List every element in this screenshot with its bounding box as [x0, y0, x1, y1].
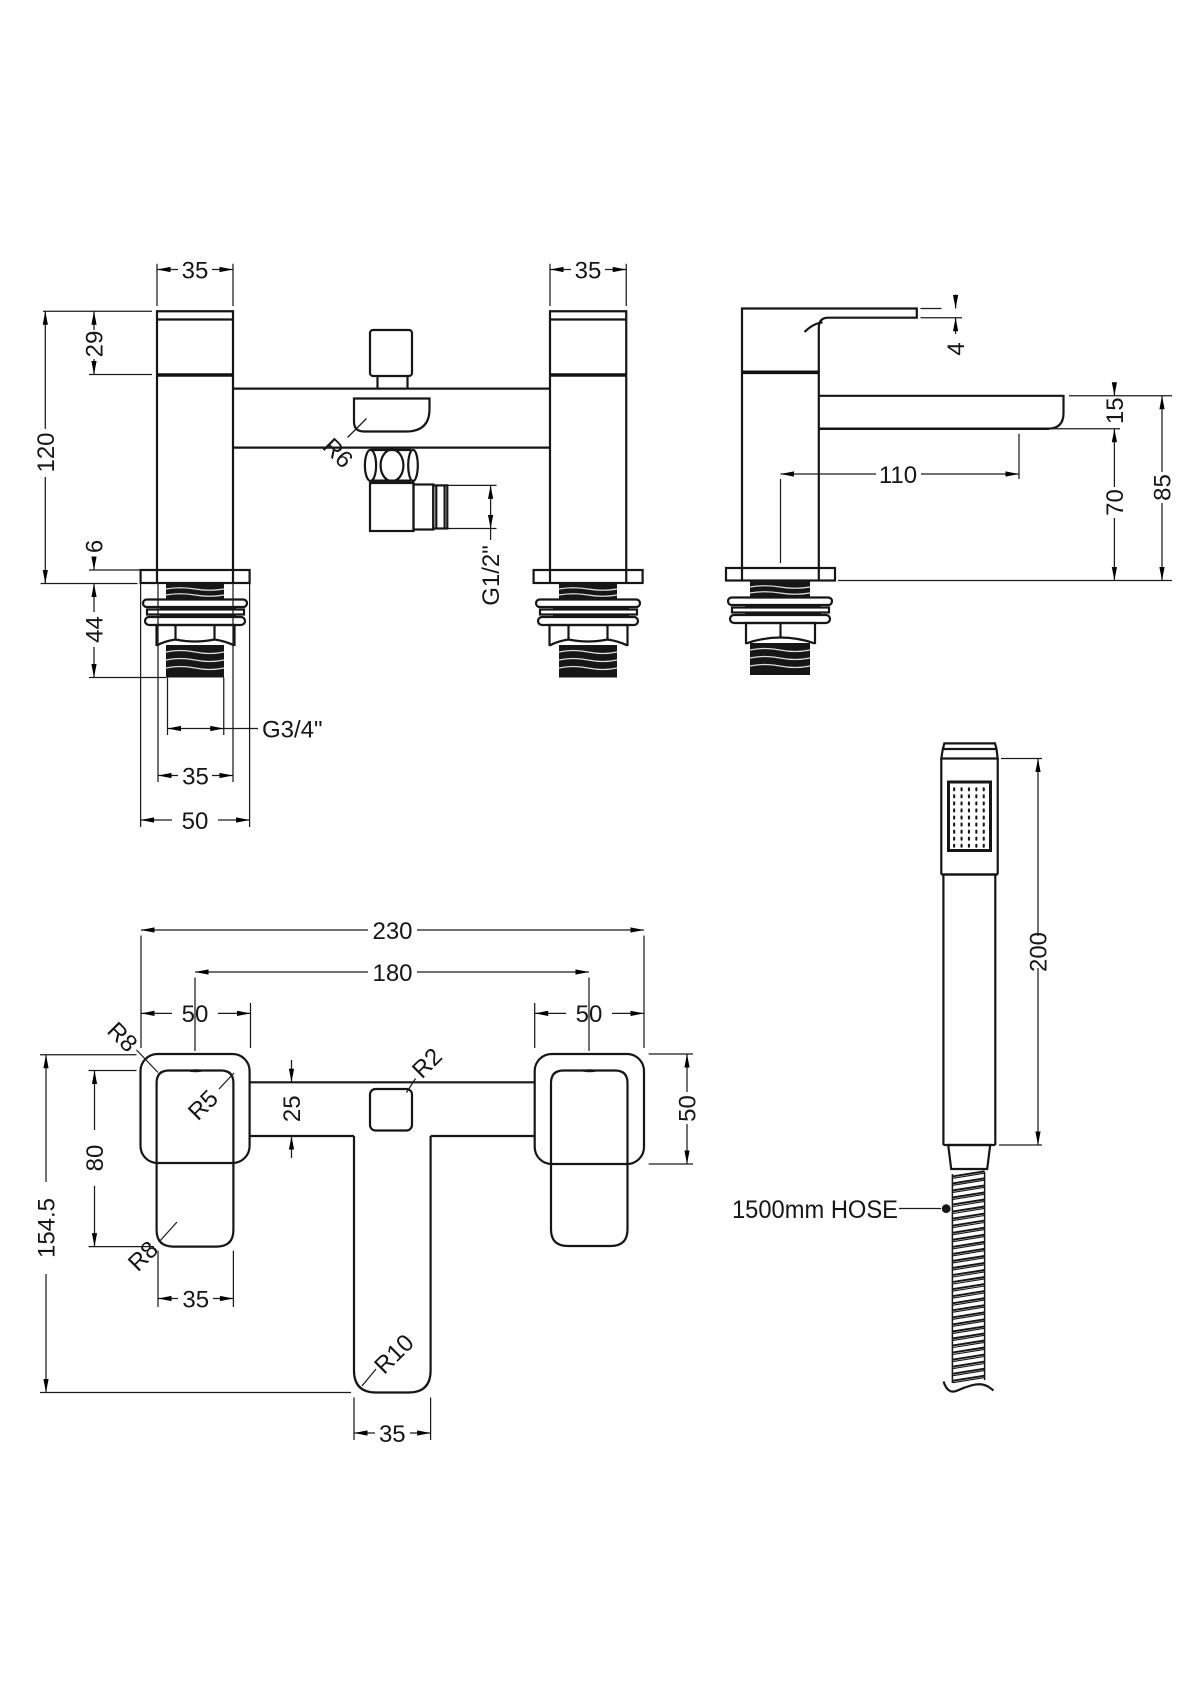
- svg-text:70: 70: [1102, 489, 1129, 516]
- svg-text:25: 25: [279, 1095, 306, 1122]
- svg-text:29: 29: [82, 331, 109, 358]
- svg-text:120: 120: [33, 432, 60, 472]
- svg-text:85: 85: [1150, 474, 1177, 501]
- svg-text:G1/2": G1/2": [478, 545, 505, 606]
- svg-text:50: 50: [182, 1001, 209, 1028]
- svg-text:154.5: 154.5: [34, 1198, 61, 1258]
- svg-text:G3/4": G3/4": [262, 716, 323, 743]
- svg-text:180: 180: [372, 960, 412, 987]
- svg-text:80: 80: [82, 1145, 109, 1172]
- svg-text:35: 35: [182, 1286, 209, 1313]
- svg-text:35: 35: [182, 763, 209, 790]
- svg-text:200: 200: [1026, 932, 1053, 972]
- svg-text:230: 230: [372, 918, 412, 945]
- svg-text:110: 110: [879, 462, 917, 489]
- svg-text:15: 15: [1102, 397, 1129, 424]
- svg-text:50: 50: [182, 808, 209, 835]
- svg-text:35: 35: [182, 257, 209, 284]
- svg-text:4: 4: [943, 342, 970, 355]
- svg-text:35: 35: [575, 257, 602, 284]
- svg-text:50: 50: [576, 1001, 603, 1028]
- svg-text:50: 50: [675, 1095, 702, 1122]
- svg-text:6: 6: [82, 540, 109, 553]
- svg-text:35: 35: [379, 1421, 406, 1448]
- svg-text:44: 44: [82, 616, 109, 643]
- svg-text:1500mm HOSE: 1500mm HOSE: [732, 1196, 898, 1224]
